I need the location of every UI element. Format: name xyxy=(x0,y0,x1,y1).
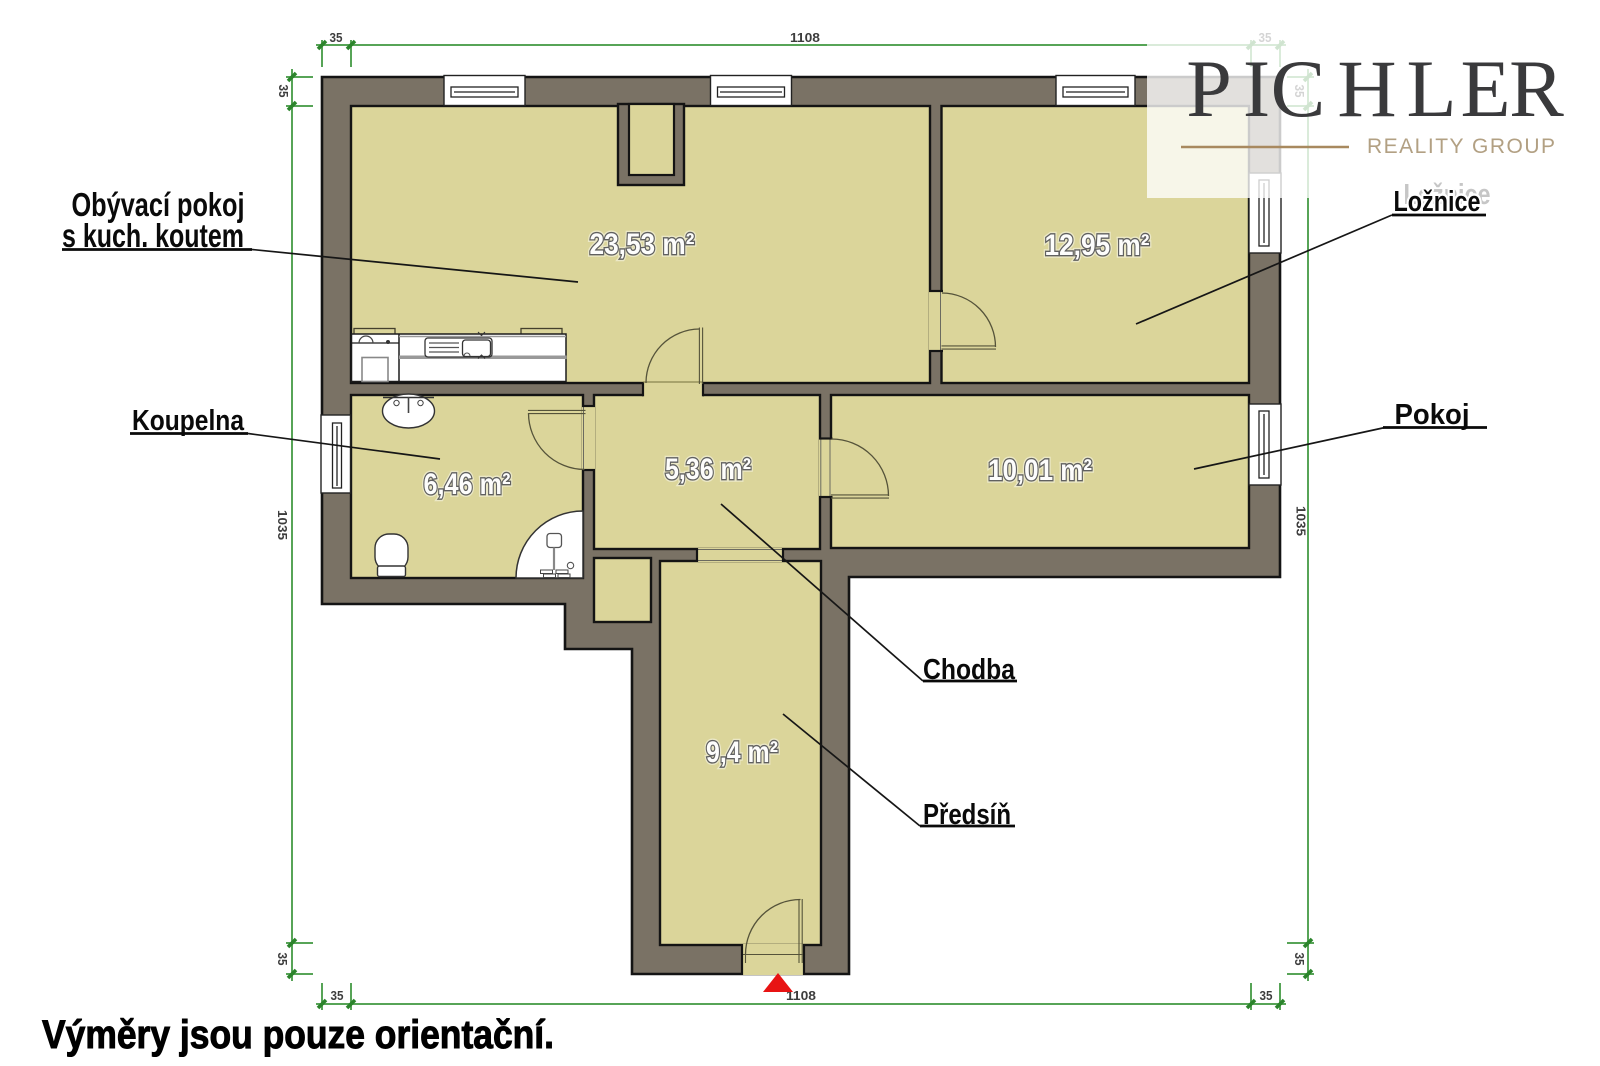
svg-text:5,36 m²: 5,36 m² xyxy=(665,453,751,486)
svg-text:REALITY GROUP: REALITY GROUP xyxy=(1367,135,1555,158)
svg-text:35: 35 xyxy=(275,953,290,966)
svg-text:35: 35 xyxy=(331,988,344,1003)
svg-text:35: 35 xyxy=(276,85,291,98)
svg-text:C: C xyxy=(1271,43,1326,134)
svg-text:Ložnice: Ložnice xyxy=(1394,186,1481,218)
svg-text:12,95 m²: 12,95 m² xyxy=(1045,229,1150,262)
svg-text:R: R xyxy=(1509,43,1564,134)
svg-text:1035: 1035 xyxy=(1294,506,1309,536)
svg-text:35: 35 xyxy=(1292,953,1307,966)
svg-text:35: 35 xyxy=(330,30,343,45)
svg-text:35: 35 xyxy=(1260,988,1273,1003)
svg-text:1035: 1035 xyxy=(275,510,290,540)
svg-text:10,01 m²: 10,01 m² xyxy=(988,454,1092,487)
svg-text:I: I xyxy=(1243,43,1270,134)
svg-text:9,4 m²: 9,4 m² xyxy=(706,736,778,769)
svg-text:6,46 m²: 6,46 m² xyxy=(424,468,511,501)
svg-text:Výměry jsou pouze orientační.: Výměry jsou pouze orientační. xyxy=(42,1013,554,1057)
svg-text:P: P xyxy=(1186,43,1232,134)
svg-text:1108: 1108 xyxy=(790,30,820,45)
svg-text:L: L xyxy=(1406,43,1456,134)
svg-text:23,53 m²: 23,53 m² xyxy=(590,228,695,261)
svg-text:H: H xyxy=(1337,43,1396,134)
svg-text:E: E xyxy=(1460,43,1510,134)
